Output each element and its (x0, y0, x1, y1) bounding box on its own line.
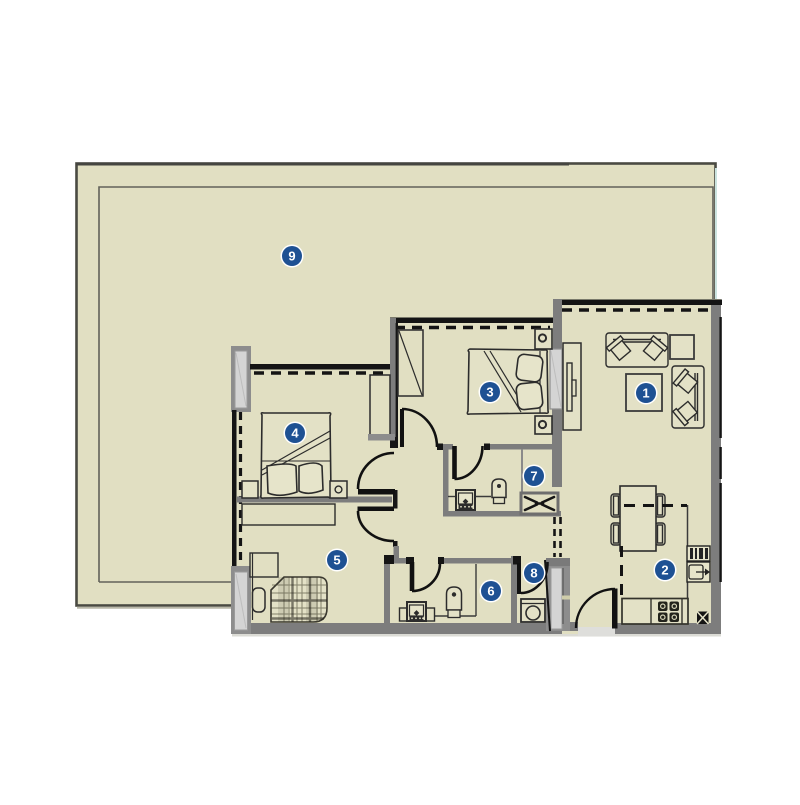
svg-text:7: 7 (530, 469, 537, 484)
svg-text:8: 8 (530, 566, 537, 581)
svg-text:1: 1 (642, 386, 649, 401)
svg-text:6: 6 (487, 584, 494, 599)
svg-text:9: 9 (288, 249, 295, 264)
svg-text:4: 4 (291, 426, 299, 441)
svg-text:3: 3 (486, 385, 493, 400)
svg-text:2: 2 (661, 563, 668, 578)
svg-text:5: 5 (333, 553, 340, 568)
